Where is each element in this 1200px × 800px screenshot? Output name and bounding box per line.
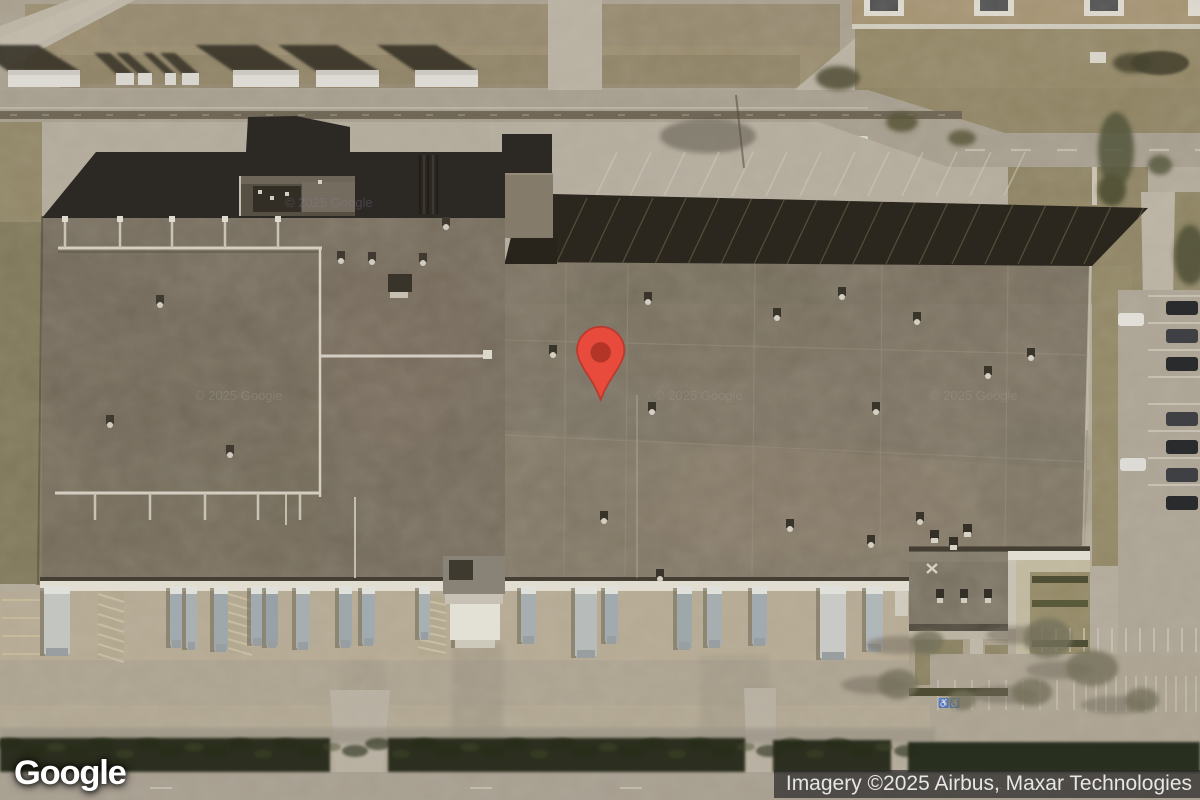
- svg-text:© 2025 Google: © 2025 Google: [285, 195, 373, 210]
- svg-text:© 2025 Google: © 2025 Google: [930, 388, 1018, 403]
- svg-text:© 2025 Google: © 2025 Google: [195, 388, 283, 403]
- svg-text:© 2025 Google: © 2025 Google: [655, 388, 743, 403]
